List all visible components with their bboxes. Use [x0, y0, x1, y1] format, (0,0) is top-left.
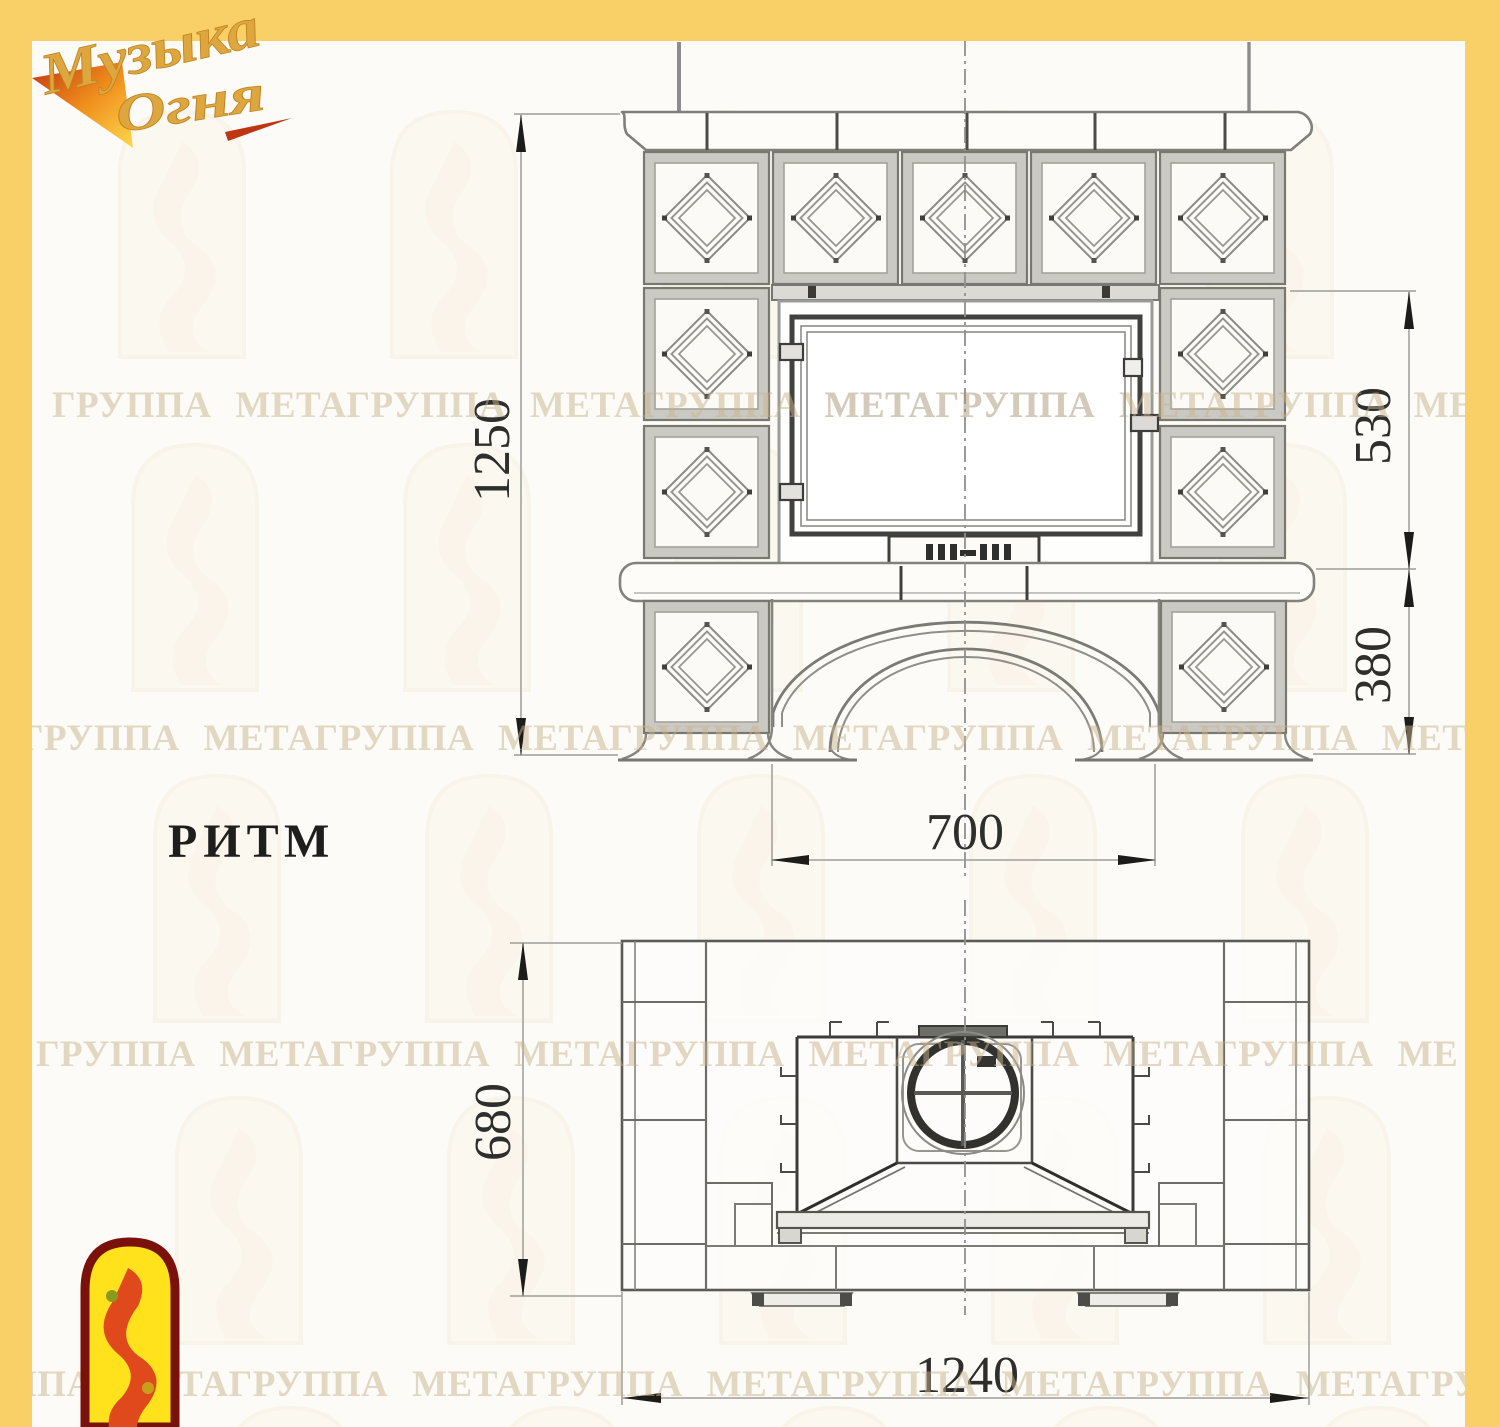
svg-text:700: 700 [926, 804, 1004, 861]
svg-text:ГРУППА МЕТАГРУППА МЕТАГРУППА М: ГРУППА МЕТАГРУППА МЕТАГРУППА МЕТАГРУППА … [36, 1034, 1458, 1075]
svg-text:ГРУППА МЕТАГРУППА МЕТАГРУППА М: ГРУППА МЕТАГРУППА МЕТАГРУППА МЕТАГРУППА … [20, 718, 1467, 759]
svg-text:380: 380 [1345, 626, 1402, 704]
svg-text:РИТМ: РИТМ [168, 815, 335, 868]
svg-text:680: 680 [465, 1083, 522, 1161]
svg-text:ГРУППА МЕТАГРУППА МЕТАГРУППА М: ГРУППА МЕТАГРУППА МЕТАГРУППА МЕТАГРУППА … [52, 385, 1474, 426]
svg-text:ППА МЕТАГРУППА МЕТАГРУППА МЕТА: ППА МЕТАГРУППА МЕТАГРУППА МЕТАГРУППА МЕТ… [8, 1364, 1481, 1405]
